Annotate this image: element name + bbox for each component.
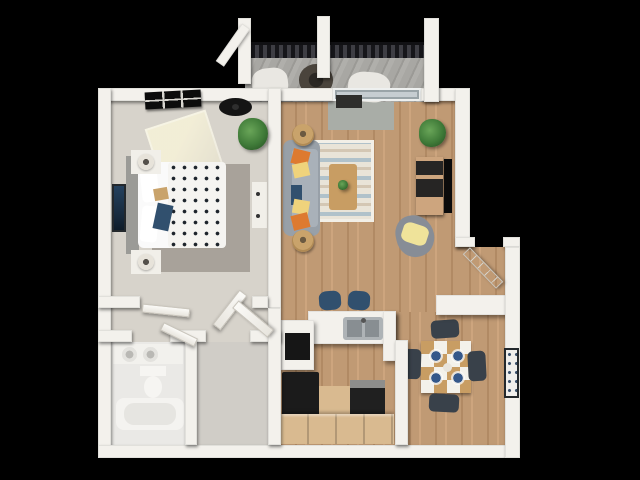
rattan-pouf-top	[292, 124, 314, 146]
wall-left	[98, 88, 111, 458]
bar-stool-2	[347, 290, 370, 310]
stove-control-band	[350, 380, 385, 388]
dining-chair-top	[430, 319, 459, 339]
bed-duvet-polka	[168, 162, 226, 248]
closet-floor	[185, 342, 281, 445]
plate-4	[452, 372, 464, 384]
vanity-sink-1	[122, 347, 137, 362]
bed-throw-tan	[153, 187, 169, 201]
bedroom-wall-art	[112, 184, 126, 232]
ceiling-fan-hub	[232, 104, 239, 110]
sink-faucet	[361, 318, 366, 323]
balcony-wall-right	[424, 18, 439, 102]
wall-right-upper	[455, 88, 470, 247]
dining-chair-right	[467, 351, 487, 382]
plate-3	[430, 372, 442, 384]
bathtub-inner	[124, 403, 176, 425]
lamp-top	[138, 154, 154, 170]
wall-hall-bottom-a	[98, 330, 132, 342]
balcony-threshold-grill	[336, 95, 362, 108]
dresser-knob-1	[256, 192, 260, 196]
wall-bedroom-bottom-b	[252, 296, 268, 308]
floor-plan	[0, 0, 640, 480]
toilet-bowl	[144, 376, 162, 398]
vanity-sink-2	[143, 347, 158, 362]
wall-top-left	[98, 88, 333, 101]
kitchen-cabinet-row	[281, 414, 394, 444]
table-centerpiece	[443, 363, 452, 372]
sink-basin-right	[365, 320, 379, 337]
balcony-railing	[243, 42, 430, 58]
plate-1	[430, 350, 442, 362]
wall-bedroom-divider	[268, 88, 281, 308]
wall-bath-closet-divider	[185, 342, 197, 445]
wall-bottom	[98, 445, 520, 458]
wall-kitchen-dining	[395, 340, 408, 445]
balcony-post-mid	[317, 16, 330, 78]
dining-chair-bottom	[429, 393, 460, 413]
plate-2	[452, 350, 464, 362]
bedroom-dresser	[252, 182, 267, 228]
built-in-oven	[285, 333, 310, 360]
wall-entry-right	[503, 237, 520, 247]
rattan-pouf-bottom	[292, 230, 314, 252]
lamp-bottom	[138, 254, 154, 270]
tv	[444, 159, 452, 213]
dining-wall-art	[504, 348, 519, 398]
wall-bedroom-bottom-a	[98, 296, 140, 308]
dresser-knob-2	[256, 214, 260, 218]
sink-basin-left	[347, 320, 362, 337]
bar-stool-1	[318, 290, 341, 310]
tv-console	[416, 157, 443, 215]
bedroom-window	[145, 90, 202, 110]
toilet-tank	[140, 366, 166, 376]
wall-entry-left	[455, 237, 475, 247]
